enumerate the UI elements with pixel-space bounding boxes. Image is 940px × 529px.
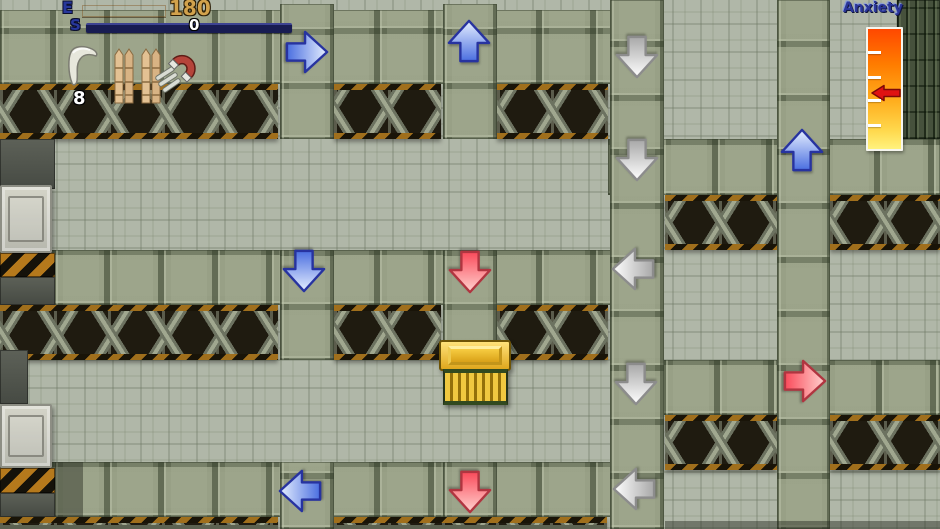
anxiety-gauge-label: Anxiety [843, 0, 903, 16]
girder [334, 84, 441, 139]
floor-arrow-gray-left-icon [610, 246, 656, 292]
floor-arrow-gray-left-icon [611, 466, 657, 512]
game-screen: E 180 S 0 [0, 0, 940, 529]
gauge-tick [868, 76, 881, 79]
chest-lid [439, 340, 511, 371]
girder [0, 517, 278, 529]
girder [830, 195, 940, 250]
girder [830, 415, 940, 470]
girder [0, 84, 278, 139]
floor-arrow-red-down-icon [447, 469, 493, 515]
stone-crate [0, 404, 52, 468]
floor-arrow-blue-left-icon [277, 468, 323, 514]
dark-pillar [897, 0, 940, 139]
girder [497, 305, 608, 360]
dark-ledge [0, 277, 55, 305]
dark-ledge [0, 139, 55, 189]
girder [665, 415, 777, 470]
floor-arrow-blue-down-icon [281, 248, 327, 294]
girder [334, 305, 441, 360]
gauge-tick [868, 99, 881, 102]
dark-ledge [0, 493, 55, 517]
gauge-tick [868, 51, 881, 54]
chest-body [443, 369, 508, 405]
girder [0, 305, 278, 360]
floor-arrow-red-right-icon [782, 358, 828, 404]
girder [665, 195, 777, 250]
floor-shadow [665, 521, 940, 529]
floor-arrow-blue-up-icon [779, 127, 825, 173]
wall-pillar [777, 0, 830, 529]
gauge-tick [868, 124, 881, 127]
floor-arrow-gray-down-icon [613, 361, 659, 407]
dark-ledge [0, 350, 28, 404]
floor-arrow-gray-down-icon [614, 34, 660, 80]
floor-shadow [55, 462, 83, 517]
hazard-stripe [0, 468, 55, 493]
treasure-chest[interactable] [437, 338, 512, 400]
girder [334, 517, 607, 529]
girder [497, 84, 608, 139]
floor-arrow-blue-right-icon [284, 29, 330, 75]
floor-arrow-blue-up-icon [446, 18, 492, 64]
floor-arrow-red-down-icon [447, 249, 493, 295]
floor-arrow-gray-down-icon [614, 137, 660, 183]
stone-crate [0, 185, 52, 253]
hazard-stripe [0, 253, 55, 277]
